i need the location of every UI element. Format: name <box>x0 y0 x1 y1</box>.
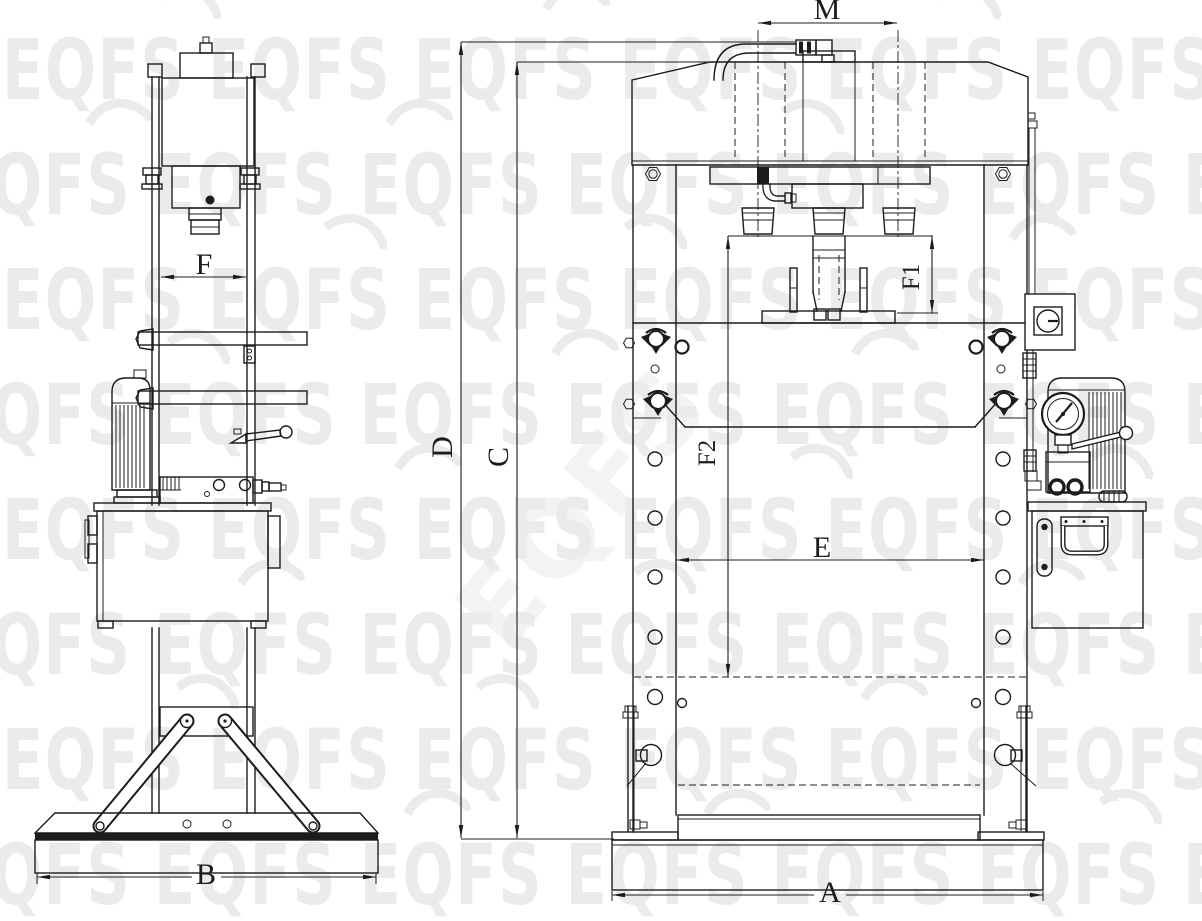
dimension-a-label: A <box>819 876 841 909</box>
dimension-c-label: C <box>482 447 515 467</box>
oil-tank-side <box>85 503 280 628</box>
side-view: F B <box>35 37 378 891</box>
power-unit <box>1023 128 1146 628</box>
dimension-f: F <box>161 248 246 281</box>
press-columns <box>624 165 1037 832</box>
dimension-e-label: E <box>813 531 831 564</box>
dimension-d-label: D <box>426 436 459 458</box>
side-view-cross-rails <box>136 329 307 409</box>
dimension-m: M <box>758 0 897 26</box>
dimension-c: C <box>482 62 712 838</box>
dimension-d: D <box>426 42 796 839</box>
oil-tank-front <box>1028 502 1146 628</box>
dimension-b-label: B <box>196 858 216 891</box>
dimension-f2: F2 <box>694 236 730 677</box>
ram-press-plate <box>710 167 933 323</box>
drawing-sheet: EQFS EQFS EQFS EQFS EQFS EQFS EQFS EQFS … <box>0 0 1202 921</box>
dimension-a: A <box>612 876 1043 909</box>
dimension-f2-label: F2 <box>694 440 721 466</box>
front-view: M D C <box>426 0 1146 909</box>
support-braces <box>96 707 317 830</box>
control-box <box>1025 294 1075 350</box>
dimension-b: B <box>37 858 376 891</box>
technical-drawing: F B <box>0 0 1202 921</box>
pump-block-side <box>160 477 286 503</box>
dimension-e: E <box>676 531 984 564</box>
work-table-and-bolster <box>634 677 1026 840</box>
dimension-f1: F1 <box>897 236 938 313</box>
column-feet <box>612 706 1044 840</box>
pump-manifold <box>1046 452 1090 494</box>
top-hose <box>714 40 834 80</box>
hand-lever-front <box>1072 427 1133 450</box>
dimension-m-label: M <box>814 0 841 26</box>
hand-lever-side <box>231 426 292 443</box>
dimension-f1-label: F1 <box>898 264 925 290</box>
dimension-f-label: F <box>196 248 213 281</box>
